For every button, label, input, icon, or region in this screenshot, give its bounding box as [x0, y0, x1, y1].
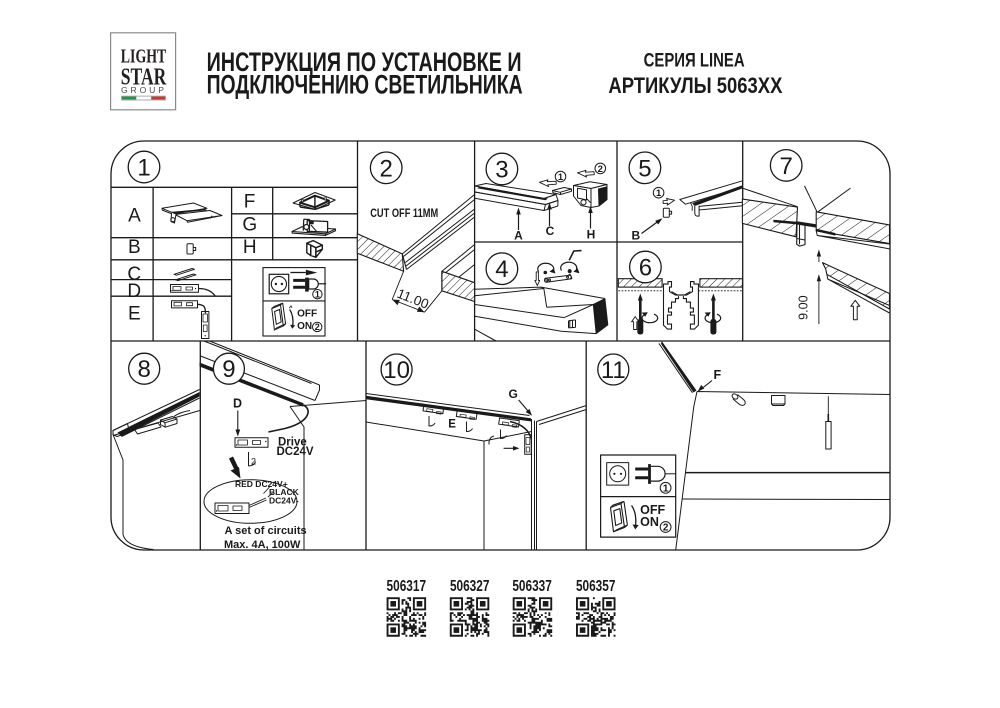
svg-text:ПОДКЛЮЧЕНИЮ СВЕТИЛЬНИКА: ПОДКЛЮЧЕНИЮ СВЕТИЛЬНИКА	[207, 69, 523, 99]
svg-text:ON: ON	[640, 515, 659, 529]
svg-text:7: 7	[780, 153, 793, 180]
svg-text:G: G	[242, 215, 257, 236]
svg-text:1: 1	[558, 172, 564, 183]
svg-text:9.00: 9.00	[797, 295, 811, 319]
svg-text:G: G	[509, 387, 518, 401]
svg-text:DC24V: DC24V	[277, 446, 314, 458]
svg-text:H: H	[243, 237, 257, 258]
svg-text:506337: 506337	[512, 578, 552, 595]
svg-text:6: 6	[639, 255, 652, 282]
svg-text:A: A	[514, 229, 523, 243]
svg-text:OFF: OFF	[297, 309, 317, 320]
svg-text:C: C	[546, 224, 555, 238]
svg-text:10: 10	[383, 357, 410, 384]
svg-text:ON: ON	[297, 321, 312, 332]
svg-text:1: 1	[663, 483, 669, 494]
svg-text:9: 9	[222, 356, 235, 383]
svg-text:СЕРИЯ LINEA: СЕРИЯ LINEA	[644, 50, 745, 72]
svg-text:CUT OFF 11MM: CUT OFF 11MM	[370, 206, 438, 220]
svg-text:2: 2	[251, 457, 256, 467]
svg-text:1: 1	[315, 289, 320, 299]
svg-text:11: 11	[601, 357, 626, 384]
svg-text:506327: 506327	[450, 578, 490, 595]
svg-text:D: D	[233, 397, 242, 411]
svg-text:H: H	[587, 228, 596, 242]
svg-text:2: 2	[380, 155, 393, 182]
svg-text:3: 3	[495, 157, 508, 184]
svg-text:F: F	[244, 191, 256, 212]
svg-text:DC24V-: DC24V-	[269, 496, 299, 506]
svg-text:E: E	[448, 419, 456, 431]
svg-text:D: D	[127, 281, 141, 302]
svg-text:GROUP: GROUP	[121, 85, 166, 95]
svg-text:506357: 506357	[576, 578, 616, 595]
svg-text:1: 1	[656, 188, 662, 199]
svg-text:F: F	[714, 368, 722, 382]
svg-text:506317: 506317	[387, 578, 427, 595]
svg-text:8: 8	[138, 356, 151, 383]
svg-text:A: A	[128, 205, 141, 226]
svg-text:B: B	[128, 237, 141, 258]
svg-text:Max. 4A, 100W: Max. 4A, 100W	[224, 539, 301, 551]
svg-text:2: 2	[598, 164, 603, 175]
svg-text:E: E	[128, 303, 141, 324]
svg-text:2: 2	[315, 322, 320, 332]
svg-text:4: 4	[495, 256, 508, 283]
svg-text:АРТИКУЛЫ 5063ХХ: АРТИКУЛЫ 5063ХХ	[608, 73, 782, 98]
svg-text:5: 5	[638, 155, 651, 182]
svg-text:A set of circuits: A set of circuits	[225, 525, 307, 537]
svg-text:2: 2	[663, 523, 669, 534]
svg-text:1: 1	[137, 155, 150, 182]
svg-text:B: B	[632, 229, 641, 243]
